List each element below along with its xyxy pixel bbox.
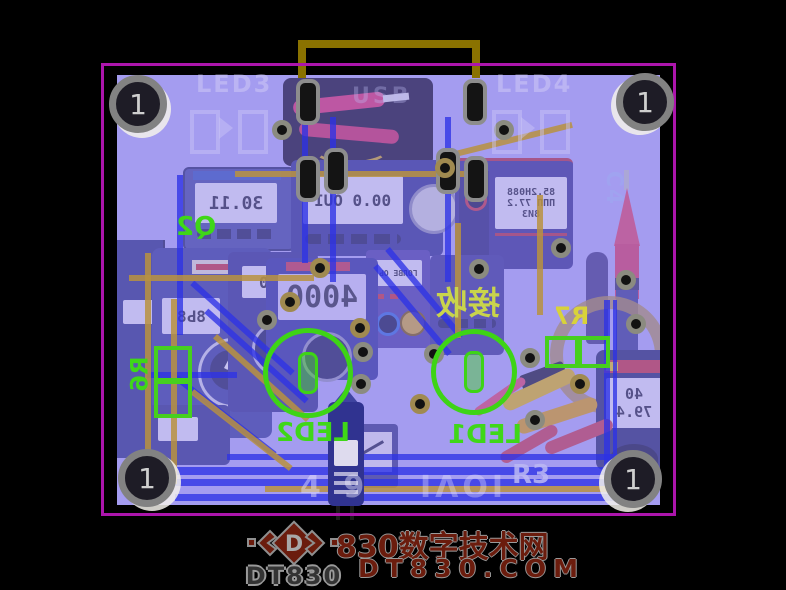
via-pad (350, 318, 370, 338)
diode-outline (190, 110, 220, 154)
silk-text: 接收 (436, 284, 500, 322)
oval-pad (464, 156, 488, 202)
svg-text:D: D (285, 532, 303, 557)
faint-text-49: 4 9 (300, 470, 370, 505)
diode-triangle (219, 117, 233, 139)
silk-label-q2-mirrored: Q2 (176, 212, 216, 242)
diode-outline (238, 110, 268, 154)
silk-label-led1-mirrored: LED1 (448, 420, 522, 450)
via-pad (626, 314, 646, 334)
via-pad (353, 342, 373, 362)
led-pad (298, 352, 318, 394)
silk-label-led3: LED3 (196, 70, 272, 98)
diode-outline (492, 110, 522, 154)
silk-label-led2-mirrored: LED2 (276, 418, 350, 448)
component-outline (578, 336, 610, 368)
component-outline (545, 336, 579, 368)
silk-label-r3: R3 (512, 460, 550, 490)
silk-text: Q2 (176, 212, 216, 242)
silk-text: R7 (554, 302, 589, 330)
watermark: D DT830 830数字技术网 DT830.COM (240, 514, 570, 588)
fiducial-marker: 1 (109, 75, 167, 133)
watermark-domain: DT830.COM (358, 554, 585, 583)
silk-text: R6 (126, 356, 154, 391)
led-circle-outline (263, 328, 353, 418)
via-pad (310, 258, 330, 278)
fiducial-marker: 1 (604, 450, 662, 508)
watermark-brand: DT830 (244, 562, 344, 590)
faint-text-usb: USB (352, 84, 411, 109)
via-pad (272, 120, 292, 140)
faint-text-ioi: IΛOI (420, 470, 507, 505)
pcb-photo-composite: 30.11 00.0 OUI 85.2H088 ΠΠΠ 77.2 8ИЗ (0, 0, 786, 590)
via-pad (435, 158, 455, 178)
fiducial-marker: 1 (118, 449, 176, 507)
silk-label-r6-mirrored: R6 (126, 356, 154, 391)
via-pad (351, 374, 371, 394)
fiducial-number: 1 (138, 462, 156, 495)
oval-pad (324, 148, 348, 194)
via-pad (469, 259, 489, 279)
fiducial-number: 1 (624, 463, 642, 496)
component-outline (154, 380, 192, 418)
component-outline (154, 346, 192, 382)
silk-label-cn-mirrored: 接收 (436, 278, 500, 324)
diode-triangle (521, 117, 535, 139)
fiducial-marker: 1 (616, 73, 674, 131)
via-pad (280, 292, 300, 312)
led-circle-outline (431, 329, 517, 415)
oval-pad (463, 79, 487, 125)
silk-text: LED2 (276, 418, 350, 448)
board-outline (101, 63, 676, 516)
led-pad (464, 351, 484, 393)
oval-pad (296, 156, 320, 202)
oval-pad (296, 79, 320, 125)
via-pad (257, 310, 277, 330)
via-pad (616, 270, 636, 290)
diode-outline (540, 110, 570, 154)
fiducial-number: 1 (129, 88, 147, 121)
via-pad (570, 374, 590, 394)
via-pad (551, 238, 571, 258)
via-pad (520, 348, 540, 368)
via-pad (410, 394, 430, 414)
silk-label-c4: C4 (601, 171, 626, 206)
fiducial-number: 1 (636, 86, 654, 119)
silk-text: LED1 (448, 420, 522, 450)
via-pad (525, 410, 545, 430)
silk-label-led4: LED4 (496, 70, 572, 98)
silk-label-r7-mirrored: R7 (554, 302, 589, 330)
